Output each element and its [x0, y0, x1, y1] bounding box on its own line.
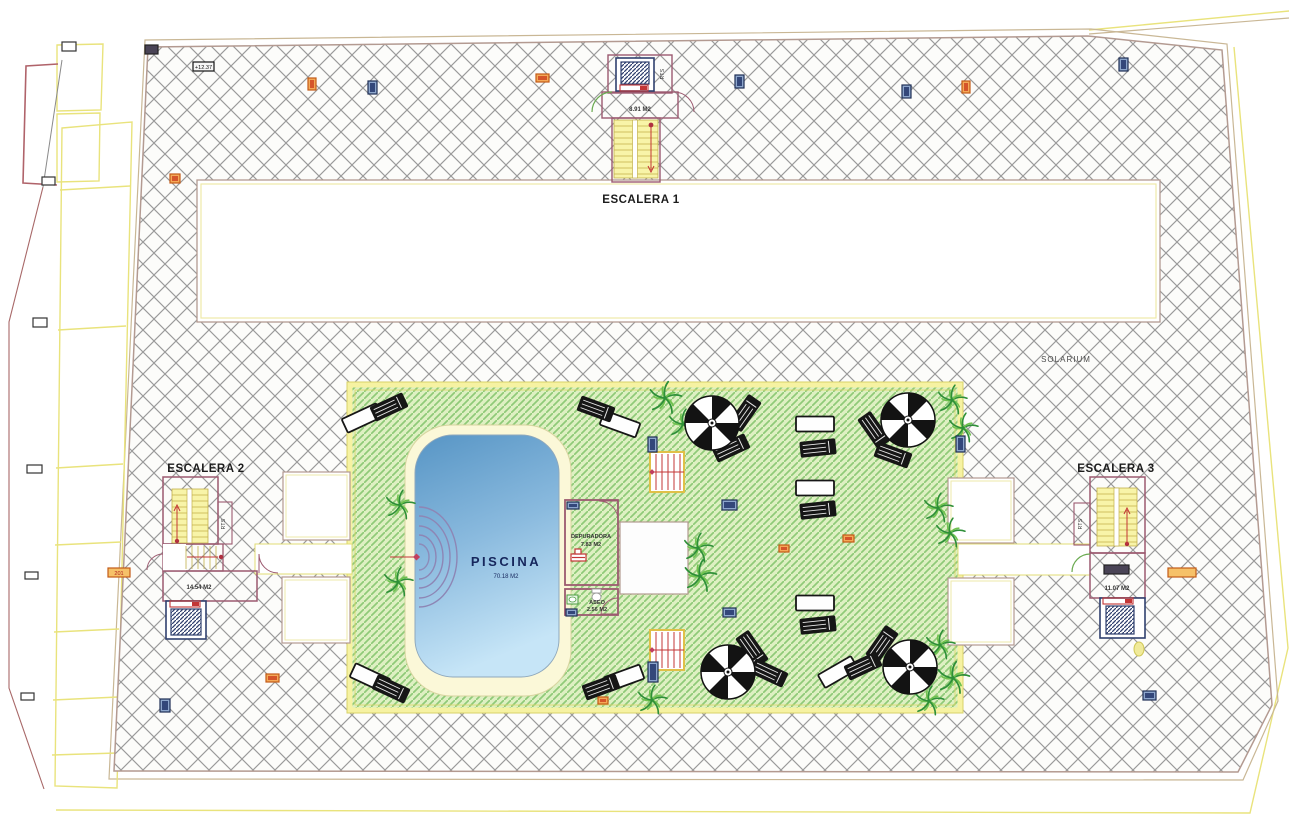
marker-navy: [1143, 691, 1156, 700]
marker-white: [62, 42, 76, 51]
pool-area: 70.18 M2: [493, 574, 519, 580]
pool-title: PISCINA: [471, 554, 541, 569]
escalera1-shaft-label: RTS: [660, 68, 666, 79]
marker-navy: [566, 609, 577, 616]
marker-navy: [902, 85, 911, 98]
marker-navy: [723, 608, 736, 617]
corridor-west: [255, 544, 352, 574]
marker-navy: [567, 502, 579, 509]
depuradora-area: 7.83 M2: [581, 542, 601, 548]
marker-orange: [779, 545, 789, 552]
elevator-icon: [166, 601, 206, 639]
marker-white: [21, 693, 34, 700]
marker-navy: [368, 81, 377, 94]
depuradora-title: DEPURADORA: [571, 534, 611, 540]
marker-orange: [170, 174, 180, 183]
marker-white: [25, 572, 38, 579]
marker-orange: [308, 78, 316, 90]
marker-navy: [648, 662, 658, 682]
access-ladder-north: [649, 452, 684, 492]
floor-plan-page: ESCALERA 1 PISCINA 70.18 M2: [0, 0, 1290, 840]
roof-opening-band: ESCALERA 1: [197, 180, 1160, 322]
marker-orange: [843, 535, 854, 542]
parasol-icon: [701, 645, 755, 699]
escalera2-title: ESCALERA 2: [167, 463, 244, 475]
marker-labelDark: +12.37: [193, 62, 214, 71]
marker-navy: [735, 75, 744, 88]
aseo-title: ASEO: [589, 600, 606, 606]
marker-orange: [266, 674, 279, 682]
white-lounger-icon: [796, 481, 834, 496]
escalera3-title: ESCALERA 3: [1077, 463, 1154, 475]
corridor-east: [958, 544, 1090, 575]
elevator-icon: [1100, 598, 1145, 638]
marker-yellowEllipse: [1134, 642, 1144, 656]
marker-navy: [722, 500, 737, 510]
stair-flight: [614, 120, 658, 178]
marker-orange: [536, 74, 549, 82]
marker-navy: [1119, 58, 1128, 71]
marker-navy: [956, 436, 965, 452]
floor-plan-canvas: ESCALERA 1 PISCINA 70.18 M2: [0, 0, 1290, 840]
white-lounger-icon: [796, 417, 834, 432]
marker-white: [33, 318, 47, 327]
marker-orange: [598, 697, 608, 704]
marker-orange: [962, 81, 970, 93]
marker-white: [42, 177, 55, 185]
marker-navy: [160, 699, 170, 712]
marker-white: [27, 465, 42, 473]
elevator-icon: [616, 58, 654, 91]
swimming-pool: PISCINA 70.18 M2: [390, 425, 571, 696]
escalera1-title: ESCALERA 1: [602, 194, 680, 206]
marker-navy: [648, 437, 657, 452]
marker-dark: [145, 45, 158, 54]
escalera2-shaft-label: RTS: [221, 518, 227, 529]
escalera3-shaft-label: RTS: [1078, 518, 1084, 529]
stair-flight: [1097, 488, 1137, 546]
marker-text: 201: [114, 571, 123, 577]
marker-text: +12.37: [195, 65, 212, 71]
escalera2-area: 14.54 M2: [186, 585, 212, 591]
solarium-label: SOLARIUM: [1041, 355, 1091, 364]
northwest-panels: [57, 44, 103, 182]
parasol-icon: [883, 640, 937, 694]
aseo-area: 2.56 M2: [587, 607, 607, 613]
marker-labelOrange: 201: [108, 568, 130, 577]
parasol-icon: [685, 396, 739, 450]
escalera3-area: 11.07 M2: [1105, 586, 1130, 592]
sink-icon: [567, 595, 578, 604]
marker-labelOrange: [1168, 568, 1196, 577]
marker-dark: [1104, 565, 1129, 574]
roof-opening-center: [620, 522, 688, 594]
escalera1-area: 8.91 M2: [629, 107, 651, 113]
white-lounger-icon: [796, 596, 834, 611]
parasol-icon: [881, 393, 935, 447]
